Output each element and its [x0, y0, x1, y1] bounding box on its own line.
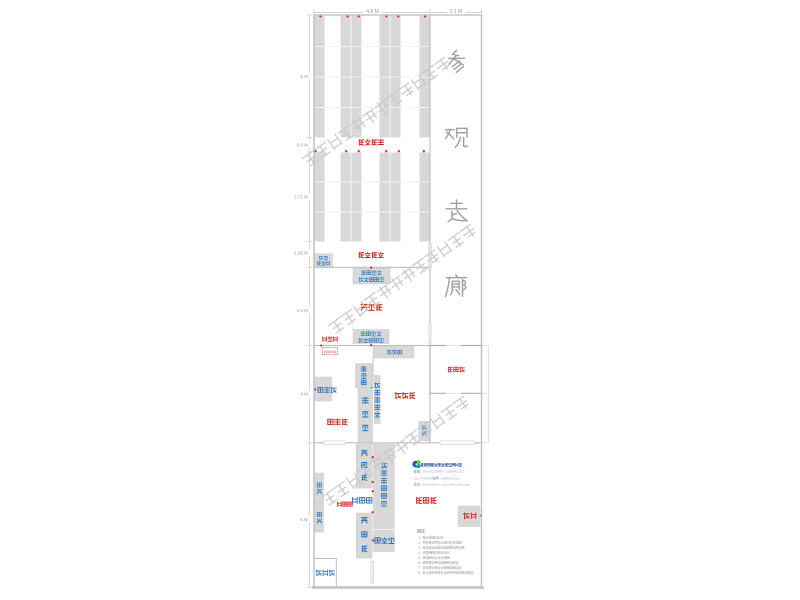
svg-text:: 0531-82796657, 15866412352: : 0531-82796657, 15866412352: [421, 470, 465, 474]
svg-text::: :: [426, 529, 427, 533]
svg-text:6.: 6.: [418, 561, 421, 565]
svg-text:2.1 M: 2.1 M: [450, 9, 463, 15]
svg-text:3.2 M: 3.2 M: [297, 308, 309, 313]
svg-text:6 M: 6 M: [300, 517, 308, 522]
svg-text:4 M: 4 M: [300, 392, 308, 397]
svg-text:3.75 M: 3.75 M: [294, 195, 308, 200]
svg-text:QQ: 57437467: QQ: 57437467: [414, 476, 435, 480]
svg-text:(0.6x0.6): (0.6x0.6): [324, 350, 337, 354]
svg-text:1.: 1.: [418, 536, 421, 540]
svg-text:: 15866412352: : 15866412352: [439, 476, 460, 480]
svg-text:0.6 M: 0.6 M: [297, 143, 309, 148]
svg-text:7.: 7.: [418, 566, 421, 570]
svg-text:2.: 2.: [418, 541, 421, 545]
svg-text:5 M: 5 M: [300, 74, 308, 79]
svg-text:: www.sdpet17.com, www.cxhkj.c: : www.sdpet17.com, www.cxhkj.com: [421, 482, 471, 486]
svg-text:5.: 5.: [418, 556, 421, 560]
svg-text:3.: 3.: [418, 546, 421, 550]
svg-text:8.: 8.: [418, 571, 421, 575]
svg-text:4.8 M: 4.8 M: [366, 9, 379, 15]
svg-text:4.: 4.: [418, 551, 421, 555]
svg-text:1.05 M: 1.05 M: [294, 251, 308, 256]
